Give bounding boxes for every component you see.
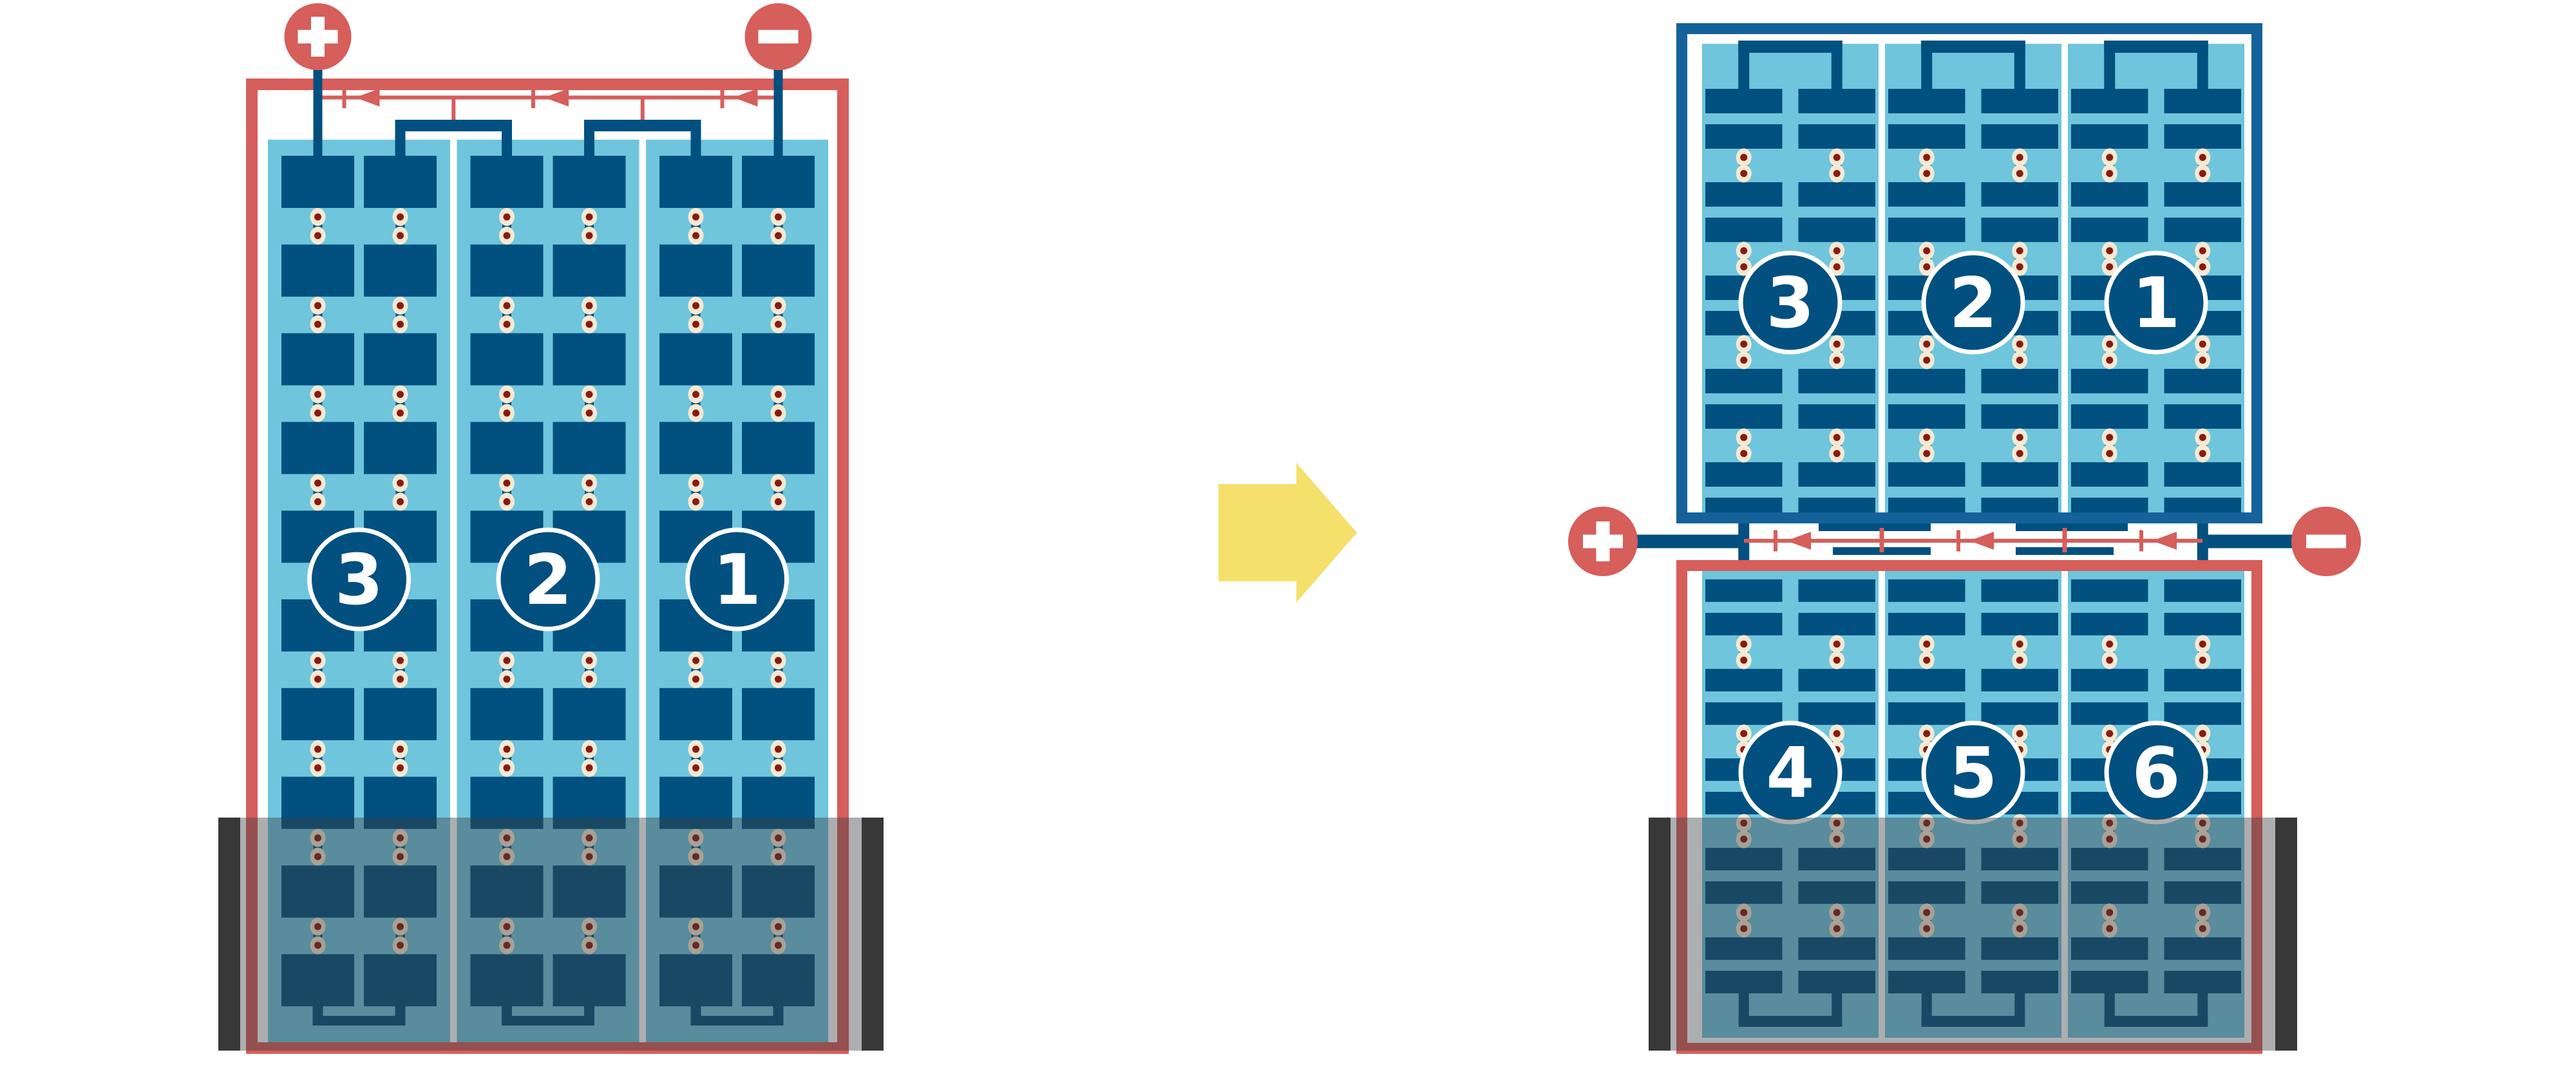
rivet-center-dot	[1833, 170, 1841, 177]
rivet-center-dot	[1740, 641, 1747, 648]
rivet-center-dot	[692, 302, 699, 309]
rivet-center-dot	[504, 232, 511, 239]
rivet-center-dot	[1833, 434, 1841, 441]
rivet-center-dot	[692, 321, 699, 328]
rivet-center-dot	[775, 232, 782, 239]
plate	[1705, 218, 1783, 242]
plate	[2071, 89, 2148, 113]
rivet-center-dot	[586, 745, 593, 753]
rivet-center-dot	[1833, 657, 1841, 664]
rivet-center-dot	[504, 745, 511, 753]
rivet-center-dot	[2106, 450, 2113, 457]
rivet-center-dot	[1740, 154, 1747, 161]
top-strap-bar	[1921, 41, 2025, 53]
rivet-center-dot	[504, 302, 511, 309]
bridge-bar	[584, 120, 701, 131]
rivet-center-dot	[2106, 154, 2113, 161]
plate	[471, 156, 544, 208]
rivet-center-dot	[314, 232, 321, 239]
rivet-center-dot	[586, 232, 593, 239]
rivet-center-dot	[504, 321, 511, 328]
plate	[2071, 702, 2148, 725]
plate	[471, 333, 544, 386]
rivet-center-dot	[1740, 434, 1747, 441]
rivet-center-dot	[314, 498, 321, 505]
current-arrow-head	[2152, 532, 2177, 550]
rivet-center-dot	[2016, 641, 2023, 648]
cell-number-label: 1	[713, 540, 761, 621]
rivet-center-dot	[397, 480, 404, 487]
plate	[1888, 218, 1965, 242]
plate	[1982, 218, 2059, 242]
rivet-center-dot	[397, 302, 404, 309]
rivet-center-dot	[1833, 641, 1841, 648]
cell-number-label: 6	[2132, 733, 2180, 814]
cell-number-label: 5	[1949, 733, 1997, 814]
plate	[1799, 89, 1876, 113]
plate	[1705, 579, 1783, 602]
plate	[1799, 404, 1876, 429]
plus-icon	[298, 30, 338, 44]
bridge-leg	[584, 131, 594, 156]
rivet-center-dot	[2199, 247, 2206, 254]
plate	[1705, 404, 1783, 429]
plate	[2164, 613, 2242, 635]
minus-icon	[2306, 535, 2346, 548]
plate	[2071, 613, 2148, 635]
bridge-bar	[395, 120, 513, 131]
rivet-center-dot	[692, 214, 699, 221]
plate	[742, 156, 815, 208]
transform-arrow	[1218, 463, 1357, 603]
rivet-center-dot	[2106, 341, 2113, 348]
plate	[2071, 124, 2148, 149]
plate	[659, 156, 732, 208]
current-arrow-tick	[1956, 530, 1960, 552]
plate	[553, 333, 626, 386]
rivet-center-dot	[1740, 357, 1747, 364]
rivet-center-dot	[775, 764, 782, 771]
rivet-center-dot	[1740, 657, 1747, 664]
rivet-center-dot	[2199, 263, 2206, 270]
cell-number-label: 2	[524, 540, 572, 621]
plate	[281, 333, 354, 386]
rivet-center-dot	[504, 676, 511, 683]
rivet-center-dot	[775, 480, 782, 487]
plate	[1982, 579, 2059, 602]
rivet-center-dot	[586, 391, 593, 398]
plate	[1888, 579, 1965, 602]
case-overlays	[218, 818, 2297, 1051]
rivet-center-dot	[504, 764, 511, 771]
current-arrow-tick	[1774, 530, 1777, 552]
plate	[2071, 669, 2148, 691]
rivet-center-dot	[397, 745, 404, 753]
rivet-center-dot	[586, 409, 593, 417]
plate	[471, 688, 544, 740]
top-strap-bar	[1738, 41, 1842, 53]
plate	[1705, 669, 1783, 691]
rivet-center-dot	[692, 764, 699, 771]
current-arrow-head	[355, 89, 380, 107]
rivet-center-dot	[692, 232, 699, 239]
rivet-center-dot	[2199, 170, 2206, 177]
plate	[1705, 369, 1783, 393]
rivet-center-dot	[1740, 263, 1747, 270]
rivet-center-dot	[2016, 730, 2023, 737]
partition-strap-upper	[2016, 523, 2128, 531]
plate	[742, 333, 815, 386]
rivet-center-dot	[314, 676, 321, 683]
plate	[471, 422, 544, 474]
case-end-bar	[2275, 818, 2297, 1051]
plate	[1799, 579, 1876, 602]
negative-terminal	[2291, 507, 2361, 576]
plate	[553, 422, 626, 474]
diagram-canvas: 321 321 456	[0, 0, 2576, 1068]
rivet-center-dot	[1740, 450, 1747, 457]
rivet-center-dot	[397, 657, 404, 664]
plate	[2164, 369, 2242, 393]
plate	[2164, 462, 2242, 487]
plate	[281, 245, 354, 297]
plate	[2164, 702, 2242, 725]
current-arrow-head	[544, 89, 569, 107]
rivet-center-dot	[586, 498, 593, 505]
plate	[2164, 669, 2242, 691]
rivet-center-dot	[775, 214, 782, 221]
rivet-center-dot	[314, 764, 321, 771]
rivet-center-dot	[397, 232, 404, 239]
rivet-center-dot	[314, 302, 321, 309]
rivet-center-dot	[2106, 247, 2113, 254]
rivet-center-dot	[314, 321, 321, 328]
plate	[2164, 89, 2242, 113]
rivet-center-dot	[586, 676, 593, 683]
rivet-center-dot	[2016, 247, 2023, 254]
rivet-center-dot	[692, 409, 699, 417]
plate	[364, 245, 437, 297]
plate	[2164, 182, 2242, 207]
plate	[1799, 462, 1876, 487]
plate	[742, 422, 815, 474]
plate	[1888, 613, 1965, 635]
plate	[1888, 669, 1965, 691]
plate	[1799, 669, 1876, 691]
plate	[364, 422, 437, 474]
rivet-center-dot	[2016, 170, 2023, 177]
rivet-center-dot	[586, 321, 593, 328]
current-arrow-head	[1786, 532, 1811, 550]
rivet-center-dot	[2199, 730, 2206, 737]
rivet-center-dot	[2199, 450, 2206, 457]
rivet-center-dot	[1923, 170, 1930, 177]
rivet-center-dot	[1923, 341, 1930, 348]
plate	[1982, 404, 2059, 429]
plate	[1982, 613, 2059, 635]
plate	[1705, 462, 1783, 487]
rivet-center-dot	[2199, 641, 2206, 648]
rivet-center-dot	[1833, 341, 1841, 348]
cell-number-label: 3	[1766, 263, 1814, 344]
plus-icon	[1583, 535, 1623, 548]
rivet-center-dot	[1923, 434, 1930, 441]
rivet-center-dot	[504, 498, 511, 505]
partition-connector-tick	[1880, 528, 1884, 552]
rivet-center-dot	[2106, 434, 2113, 441]
cell-number-label: 2	[1949, 263, 1997, 344]
rivet-center-dot	[2016, 657, 2023, 664]
rivet-center-dot	[586, 302, 593, 309]
rivet-center-dot	[1740, 170, 1747, 177]
rivet-center-dot	[2016, 341, 2023, 348]
plate	[553, 245, 626, 297]
rivet-center-dot	[504, 214, 511, 221]
rivet-center-dot	[504, 480, 511, 487]
plate	[1888, 462, 1965, 487]
plate	[1799, 613, 1876, 635]
plate	[1888, 89, 1965, 113]
positive-terminal	[285, 3, 352, 70]
plate	[1705, 702, 1783, 725]
rivet-center-dot	[2199, 434, 2206, 441]
plate	[281, 156, 354, 208]
rivet-center-dot	[586, 657, 593, 664]
rivet-center-dot	[1740, 247, 1747, 254]
cell-number-label: 1	[2132, 263, 2180, 344]
plate	[659, 688, 732, 740]
rivet-center-dot	[314, 409, 321, 417]
rivet-center-dot	[586, 214, 593, 221]
rivet-center-dot	[504, 657, 511, 664]
rivet-center-dot	[1833, 154, 1841, 161]
rivet-center-dot	[2016, 434, 2023, 441]
plate	[1888, 124, 1965, 149]
rivet-center-dot	[586, 480, 593, 487]
rivet-center-dot	[586, 764, 593, 771]
plate	[1888, 369, 1965, 393]
partition-strap-upper	[1819, 523, 1931, 531]
rivet-center-dot	[692, 480, 699, 487]
rivet-center-dot	[2016, 263, 2023, 270]
top-row-case-bottom-bar	[1676, 515, 2262, 523]
rivet-center-dot	[314, 480, 321, 487]
top-strap-bar	[2104, 41, 2208, 53]
negative-terminal	[745, 3, 812, 70]
bridge-leg	[691, 131, 701, 156]
rivet-center-dot	[775, 409, 782, 417]
rivet-center-dot	[775, 676, 782, 683]
rivet-center-dot	[1833, 450, 1841, 457]
plate	[1982, 89, 2059, 113]
rivet-center-dot	[2106, 357, 2113, 364]
partition-connector-tick	[2063, 528, 2067, 552]
rivet-center-dot	[1923, 263, 1930, 270]
plate	[1982, 669, 2059, 691]
plate	[1982, 124, 2059, 149]
right-battery-top-row: 321	[1676, 29, 2262, 524]
cell-number-label: 3	[335, 540, 383, 621]
rivet-center-dot	[692, 657, 699, 664]
rivet-center-dot	[397, 391, 404, 398]
rivet-center-dot	[2106, 657, 2113, 664]
plate	[364, 156, 437, 208]
rivet-center-dot	[2199, 341, 2206, 348]
plate	[1799, 702, 1876, 725]
rivet-center-dot	[775, 391, 782, 398]
cell-number-label: 4	[1766, 733, 1814, 814]
plate	[659, 422, 732, 474]
rivet-center-dot	[775, 657, 782, 664]
plate	[2164, 404, 2242, 429]
plate	[2071, 182, 2148, 207]
case-end-bar	[218, 818, 240, 1051]
rivet-center-dot	[775, 745, 782, 753]
rivet-center-dot	[2199, 154, 2206, 161]
case-tray-overlay	[218, 818, 884, 1051]
rivet-center-dot	[775, 498, 782, 505]
rivet-center-dot	[692, 676, 699, 683]
rivet-center-dot	[2016, 357, 2023, 364]
rivet-center-dot	[1923, 641, 1930, 648]
plate	[364, 688, 437, 740]
plate	[281, 422, 354, 474]
rivet-center-dot	[1740, 730, 1747, 737]
plate	[1705, 124, 1783, 149]
rivet-center-dot	[775, 302, 782, 309]
plate	[659, 333, 732, 386]
rivet-center-dot	[1923, 730, 1930, 737]
plate	[1982, 462, 2059, 487]
rivet-center-dot	[397, 498, 404, 505]
rivet-center-dot	[1923, 357, 1930, 364]
rivet-center-dot	[1833, 730, 1841, 737]
plate	[1705, 182, 1783, 207]
plate	[742, 688, 815, 740]
plate	[1799, 124, 1876, 149]
plate	[2164, 218, 2242, 242]
rivet-center-dot	[1833, 357, 1841, 364]
case-tray-overlay	[1649, 818, 2297, 1051]
plate	[659, 245, 732, 297]
current-arrow-head	[734, 89, 758, 107]
rivet-center-dot	[314, 657, 321, 664]
plate	[2071, 369, 2148, 393]
plate	[364, 333, 437, 386]
plate	[1982, 369, 2059, 393]
rivet-center-dot	[314, 214, 321, 221]
rivet-center-dot	[397, 321, 404, 328]
positive-terminal	[1568, 507, 1638, 576]
rivet-center-dot	[314, 391, 321, 398]
plate	[1982, 702, 2059, 725]
plate	[1888, 182, 1965, 207]
case-end-bar	[1649, 818, 1671, 1051]
plate	[553, 156, 626, 208]
plate	[1888, 702, 1965, 725]
rivet-center-dot	[2106, 641, 2113, 648]
plate	[2164, 124, 2242, 149]
rivet-center-dot	[1833, 263, 1841, 270]
rivet-center-dot	[314, 745, 321, 753]
rivet-center-dot	[692, 391, 699, 398]
plate	[2071, 462, 2148, 487]
current-arrow-tick	[2139, 530, 2143, 552]
rivet-center-dot	[397, 676, 404, 683]
minus-icon	[759, 30, 799, 44]
plate	[281, 688, 354, 740]
rivet-center-dot	[2106, 263, 2113, 270]
rivet-center-dot	[1923, 247, 1930, 254]
plate	[1799, 182, 1876, 207]
plate	[1705, 89, 1783, 113]
rivet-center-dot	[504, 391, 511, 398]
plate	[2071, 218, 2148, 242]
rivet-center-dot	[1833, 247, 1841, 254]
rivet-center-dot	[504, 409, 511, 417]
rivet-center-dot	[1740, 341, 1747, 348]
plate	[553, 688, 626, 740]
rivet-center-dot	[2106, 730, 2113, 737]
case-end-bar	[862, 818, 884, 1051]
plate	[2071, 404, 2148, 429]
rivet-center-dot	[1923, 657, 1930, 664]
rivet-center-dot	[2106, 170, 2113, 177]
bridge-leg	[395, 131, 406, 156]
yellow-right-arrow-icon	[1218, 463, 1357, 603]
plate	[1982, 182, 2059, 207]
bridge-leg	[502, 131, 512, 156]
rivet-center-dot	[692, 745, 699, 753]
rivet-center-dot	[2199, 357, 2206, 364]
plate	[2071, 579, 2148, 602]
rivet-center-dot	[2199, 657, 2206, 664]
rivet-center-dot	[1923, 450, 1930, 457]
plate	[1799, 369, 1876, 393]
rivet-center-dot	[397, 214, 404, 221]
rivet-center-dot	[775, 321, 782, 328]
rivet-center-dot	[2016, 450, 2023, 457]
plate	[1705, 613, 1783, 635]
rivet-center-dot	[397, 409, 404, 417]
rivet-center-dot	[397, 764, 404, 771]
plate	[471, 245, 544, 297]
rivet-center-dot	[2016, 154, 2023, 161]
rivet-center-dot	[692, 498, 699, 505]
plate	[742, 245, 815, 297]
rivet-center-dot	[1923, 154, 1930, 161]
plate	[1888, 404, 1965, 429]
plate	[1799, 218, 1876, 242]
battery-connection-diagram: 321 321 456	[0, 0, 2576, 1068]
plate	[2164, 579, 2242, 602]
current-arrow-head	[1969, 532, 1994, 550]
